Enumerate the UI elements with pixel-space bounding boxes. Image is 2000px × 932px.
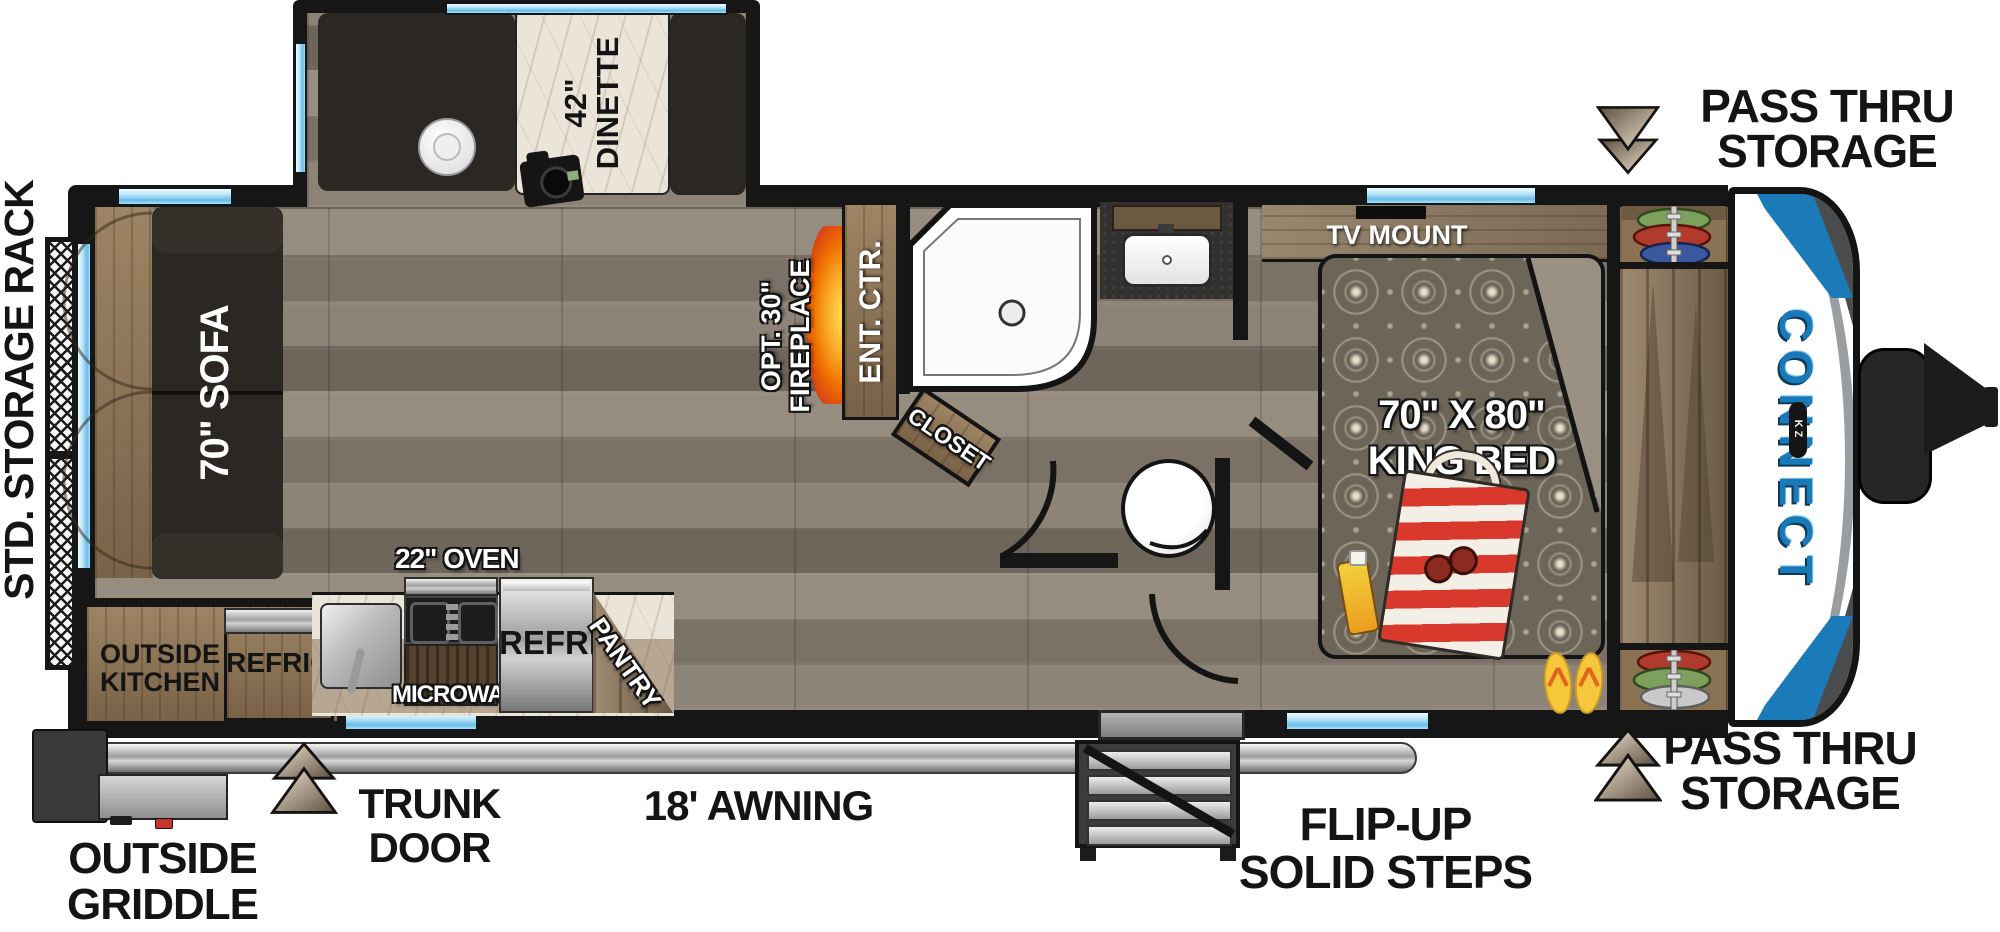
griddle-knob-icon	[155, 818, 173, 829]
range-cooktop	[404, 596, 498, 644]
refrigerator-top-band	[503, 581, 590, 591]
flip-flops-icon	[1540, 648, 1610, 718]
dinette-size-text: 42"	[558, 78, 593, 127]
sunscreen-cap	[1349, 550, 1367, 566]
window-slide-side	[294, 42, 307, 174]
window-rear	[76, 242, 92, 570]
tv-mount-label: TV MOUNT	[1318, 221, 1476, 249]
pass-thru-divider-top	[1620, 262, 1728, 269]
burner-grate-right	[458, 602, 498, 644]
refrig-label: REFRIG	[499, 626, 594, 660]
griddle-foot	[110, 816, 132, 825]
fireplace-line1: OPT. 30"	[756, 281, 786, 391]
tv	[1356, 206, 1426, 219]
dish-rack-top-icon	[1622, 206, 1726, 266]
dinette-text: DINETTE	[590, 37, 625, 170]
oven-label: 22" OVEN	[395, 544, 510, 573]
rear-storage-rack-divider	[45, 451, 77, 459]
arrow-down-icon	[1596, 102, 1660, 178]
burner-grate-left	[410, 602, 450, 644]
outside-kitchen-line2: KITCHEN	[100, 667, 220, 697]
entry-landing	[1098, 710, 1245, 740]
outside-kitchen-label: OUTSIDE KITCHEN	[95, 640, 225, 696]
trunk-arrow-up-icon	[268, 742, 340, 822]
trunk-door-line2: DOOR	[369, 824, 491, 871]
window-bedroom-top	[1365, 186, 1537, 205]
propane-cover	[1858, 348, 1932, 504]
bathroom-wall-bottom	[1000, 553, 1118, 568]
steps-line1: FLIP-UP	[1300, 798, 1472, 850]
range-knobs	[446, 600, 458, 640]
bathroom-wall-right-upper	[1233, 202, 1248, 340]
griddle-line1: OUTSIDE	[68, 834, 257, 883]
pass-thru-bottom-label: PASS THRU STORAGE	[1625, 726, 1955, 816]
trunk-door-line1: TRUNK	[359, 780, 501, 827]
vanity-drain-icon	[1162, 255, 1172, 265]
camera-screen	[567, 170, 579, 180]
microwave-label: MICROWAVE	[392, 683, 512, 708]
bed-size-text: 70" X 80"	[1378, 393, 1545, 437]
flip-up-steps-label: FLIP-UP SOLID STEPS	[1158, 800, 1613, 896]
griddle-line2: GRIDDLE	[67, 880, 258, 929]
toilet	[1121, 459, 1216, 558]
outside-griddle-unit	[98, 774, 228, 820]
pass-thru-top-label: PASS THRU STORAGE	[1662, 84, 1992, 174]
step-foot-left	[1080, 848, 1096, 861]
kz-badge: KZ	[1789, 402, 1807, 458]
window-slide-top	[445, 2, 728, 15]
storage-rack-label: STD. STORAGE RACK	[0, 145, 40, 635]
outside-griddle-label: OUTSIDE GRIDDLE	[40, 836, 285, 928]
fireplace-label: OPT. 30" FIREPLACE	[757, 231, 815, 441]
pass-thru-divider-bottom	[1620, 643, 1728, 650]
hat-crown	[433, 133, 461, 161]
steps-line2: SOLID STEPS	[1239, 846, 1532, 898]
rv-floorplan-canvas: 42" DINETTE STD. STORAGE RACK 70" SOFA O…	[0, 0, 2000, 932]
griddle-bracket	[32, 729, 108, 823]
kitchen-sink	[320, 603, 402, 689]
camera-lens-icon	[538, 164, 574, 200]
wardrobe-shading-2	[1678, 302, 1714, 562]
awning-label: 18' AWNING	[636, 784, 881, 828]
camera-prop	[519, 154, 585, 208]
hitch-coupler	[1984, 387, 1998, 427]
step-tread-2	[1087, 775, 1232, 796]
pass-thru-top-line2: STORAGE	[1717, 125, 1937, 177]
range-hood	[404, 577, 498, 596]
window-top-left	[117, 187, 233, 206]
bathroom-wall-right-lower	[1215, 458, 1230, 590]
camera-hump	[526, 150, 549, 163]
fireplace-line2: FIREPLACE	[785, 260, 815, 413]
outside-kitchen-line1: OUTSIDE	[100, 639, 220, 669]
wardrobe-shading	[1632, 282, 1674, 582]
sofa-back-shelf	[95, 207, 153, 578]
shower-drain-icon	[1000, 301, 1024, 325]
hitch-tongue	[1924, 343, 1988, 455]
step-tread-1	[1087, 750, 1232, 771]
pass-thru-storage-area	[1607, 207, 1728, 710]
window-bedroom-bottom	[1285, 711, 1430, 731]
sofa-label: 70" SOFA	[195, 243, 239, 543]
dinette-bench-left	[318, 13, 515, 191]
dinette-bench-right	[670, 13, 746, 195]
shower	[906, 201, 1098, 393]
pass-thru-bottom-line2: STORAGE	[1680, 767, 1900, 819]
dish-rack-bottom-icon	[1622, 650, 1726, 710]
trunk-door-label: TRUNK DOOR	[332, 782, 527, 870]
ent-ctr-label: ENT. CTR.	[855, 203, 887, 421]
